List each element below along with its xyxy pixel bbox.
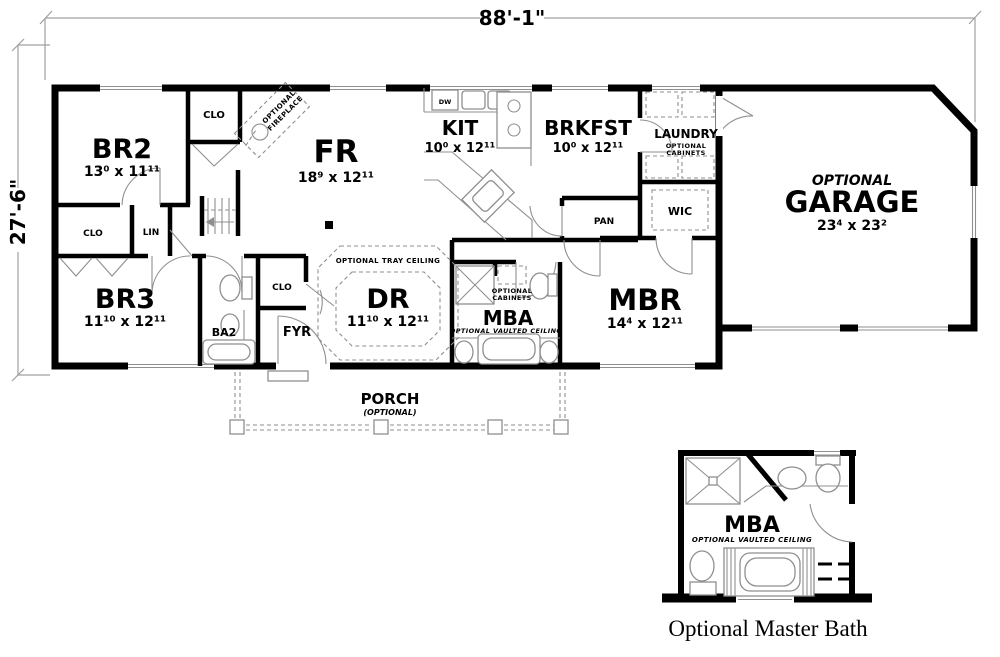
laundry-label: LAUNDRY <box>654 127 718 141</box>
garage-label: GARAGE <box>785 185 920 219</box>
mba-cab-note2: CABINETS <box>492 294 531 302</box>
detail-mba-note: OPTIONAL VAULTED CEILING <box>692 536 812 544</box>
mbr-label: MBR <box>608 283 681 317</box>
brkfst-dims: 10⁰ x 12¹¹ <box>553 141 624 156</box>
optional-fireplace: OPTIONAL FIREPLACE <box>234 82 310 158</box>
detail-pedestal-sink <box>690 551 714 581</box>
dr-dims: 11¹⁰ x 12¹¹ <box>347 314 429 330</box>
left-dimension: 27'-6" <box>6 39 50 381</box>
detail-toilet <box>816 464 840 492</box>
fr-label: FR <box>313 134 358 170</box>
br3-label: BR3 <box>95 284 155 315</box>
clo-hall-label: CLO <box>83 229 103 239</box>
brkfst-label: BRKFST <box>544 116 632 140</box>
porch-label: PORCH <box>361 390 420 408</box>
ba2-label: BA2 <box>212 326 237 339</box>
kit-dims: 10⁰ x 12¹¹ <box>425 141 496 156</box>
dr-label: DR <box>366 284 409 315</box>
floor-plan-drawing: 88'-1" 27'-6" <box>0 0 1000 657</box>
clo-br2-label: CLO <box>203 110 225 121</box>
br2-dims: 13⁰ x 11¹¹ <box>84 164 160 180</box>
mbr-dims: 14⁴ x 12¹¹ <box>607 316 683 332</box>
wic-label: WIC <box>668 205 692 218</box>
detail-linen-shelves <box>818 564 850 579</box>
lin-label: LIN <box>143 228 160 238</box>
kitchen-fixtures: DW <box>424 88 532 240</box>
detail-entry-arc <box>810 504 852 542</box>
porch-note: (OPTIONAL) <box>363 408 416 417</box>
stairs <box>204 198 236 234</box>
detail-sink <box>778 467 806 489</box>
garage-dims: 23⁴ x 23² <box>817 218 887 234</box>
column-post <box>325 221 333 229</box>
br3-dims: 11¹⁰ x 12¹¹ <box>84 314 166 330</box>
ba2-fixtures <box>203 275 255 364</box>
kit-label: KIT <box>442 116 479 140</box>
mba-note: OPTIONAL VAULTED CEILING <box>450 327 563 335</box>
detail-mba-label: MBA <box>724 513 780 538</box>
laundry-note2: CABINETS <box>666 149 705 157</box>
clo-fyr-label: CLO <box>272 283 292 293</box>
pan-label: PAN <box>594 217 614 227</box>
detail-caption: Optional Master Bath <box>668 616 868 641</box>
br2-label: BR2 <box>92 134 152 165</box>
floor-plan-page: 88'-1" 27'-6" <box>0 0 1000 657</box>
width-dimension-label: 88'-1" <box>479 6 546 30</box>
dishwasher-label: DW <box>439 98 452 106</box>
height-dimension-label: 27'-6" <box>6 179 30 246</box>
detail-tub <box>724 548 814 596</box>
dr-note: OPTIONAL TRAY CEILING <box>336 257 441 265</box>
optional-master-bath-detail: MBA OPTIONAL VAULTED CEILING Optional Ma… <box>662 450 872 641</box>
fyr-label: FYR <box>283 325 311 340</box>
fr-dims: 18⁹ x 12¹¹ <box>298 170 374 186</box>
detail-shower <box>686 458 740 504</box>
